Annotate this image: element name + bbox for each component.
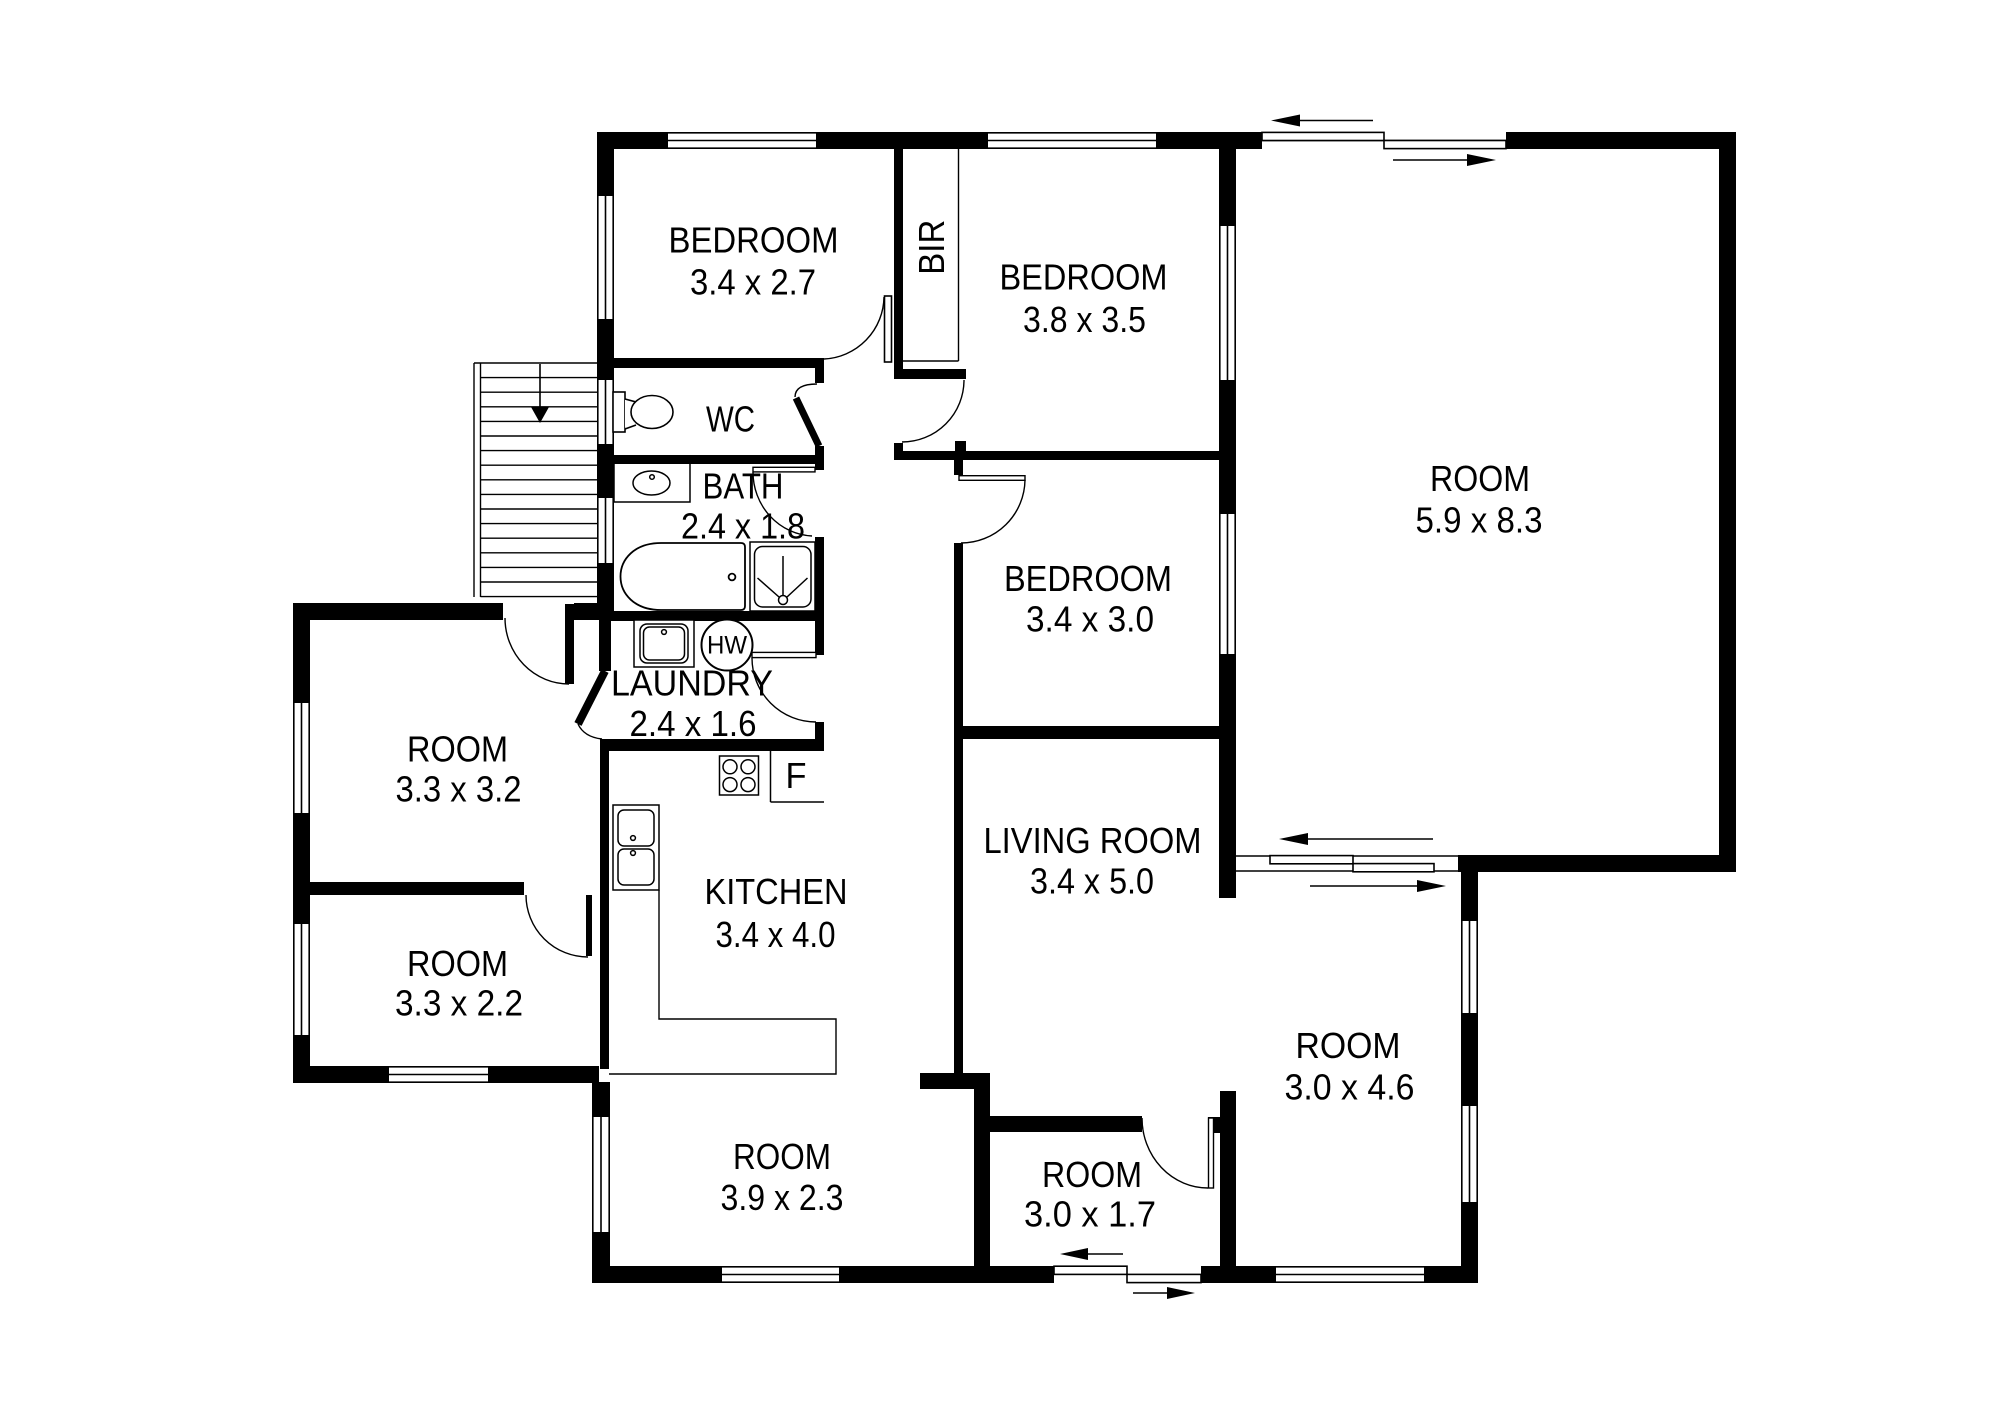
svg-text:2.4 x 1.6: 2.4 x 1.6 bbox=[630, 703, 757, 744]
svg-text:WC: WC bbox=[706, 399, 755, 440]
svg-text:3.0 x 1.7: 3.0 x 1.7 bbox=[1024, 1193, 1156, 1234]
svg-text:5.9 x 8.3: 5.9 x 8.3 bbox=[1416, 500, 1543, 541]
svg-text:ROOM: ROOM bbox=[407, 943, 508, 984]
svg-text:ROOM: ROOM bbox=[1296, 1025, 1401, 1066]
svg-text:LIVING ROOM: LIVING ROOM bbox=[984, 820, 1202, 861]
svg-text:BEDROOM: BEDROOM bbox=[1004, 558, 1172, 599]
svg-text:BATH: BATH bbox=[703, 466, 784, 507]
svg-text:KITCHEN: KITCHEN bbox=[705, 871, 848, 912]
svg-text:3.3 x 3.2: 3.3 x 3.2 bbox=[396, 769, 522, 810]
svg-text:BIR: BIR bbox=[911, 220, 952, 275]
svg-text:F: F bbox=[786, 755, 807, 796]
svg-text:LAUNDRY: LAUNDRY bbox=[611, 663, 773, 704]
svg-text:3.0 x 4.6: 3.0 x 4.6 bbox=[1285, 1067, 1415, 1108]
svg-text:BEDROOM: BEDROOM bbox=[1000, 257, 1168, 298]
svg-text:3.9 x 2.3: 3.9 x 2.3 bbox=[721, 1177, 844, 1218]
svg-text:3.4 x 3.0: 3.4 x 3.0 bbox=[1026, 599, 1154, 640]
svg-text:3.4 x 2.7: 3.4 x 2.7 bbox=[690, 262, 816, 303]
svg-text:3.8 x 3.5: 3.8 x 3.5 bbox=[1023, 299, 1146, 340]
svg-text:3.4 x 5.0: 3.4 x 5.0 bbox=[1030, 861, 1154, 902]
svg-text:ROOM: ROOM bbox=[733, 1136, 831, 1177]
svg-text:2.4 x 1.8: 2.4 x 1.8 bbox=[681, 506, 805, 547]
svg-text:ROOM: ROOM bbox=[1430, 458, 1530, 499]
svg-text:BEDROOM: BEDROOM bbox=[669, 220, 839, 261]
svg-text:ROOM: ROOM bbox=[407, 729, 508, 770]
svg-text:3.4 x 4.0: 3.4 x 4.0 bbox=[716, 914, 836, 955]
svg-text:3.3 x 2.2: 3.3 x 2.2 bbox=[395, 983, 523, 1024]
svg-text:ROOM: ROOM bbox=[1042, 1154, 1142, 1195]
svg-text:HW: HW bbox=[707, 632, 747, 660]
